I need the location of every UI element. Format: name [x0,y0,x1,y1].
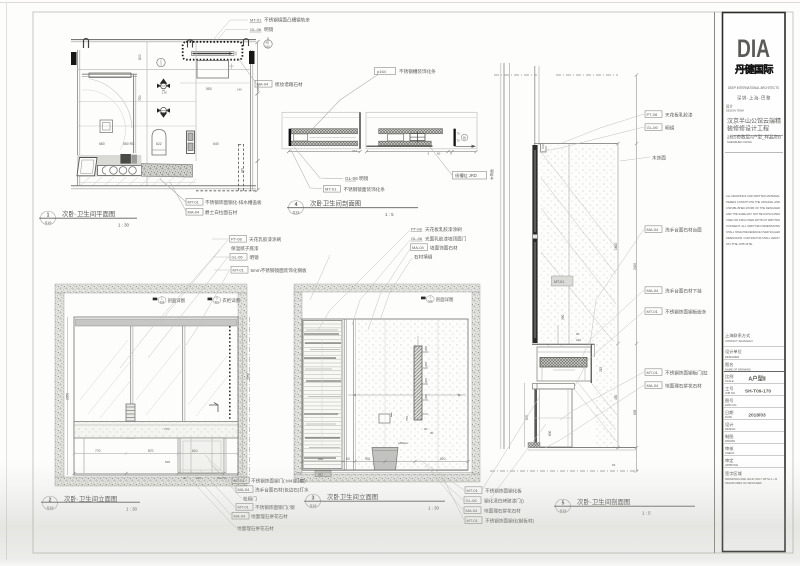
svg-text:DATE: DATE [725,415,732,419]
svg-text:汉京半山公馆云端精: 汉京半山公馆云端精 [727,117,781,125]
svg-text:PT-08: PT-08 [411,227,422,232]
svg-text:USED OR DISCLOSED WITHOUT WRIT: USED OR DISCLOSED WITHOUT WRITTEN [726,218,780,222]
svg-text:洗手台面石材台面: 洗手台面石材台面 [665,226,702,233]
svg-text:不锈钢饰面钢板嵌条: 不锈钢饰面钢板嵌条 [665,308,707,315]
svg-text:MT-01: MT-01 [325,187,337,192]
svg-text:CONTACT SHANGHAI: CONTACT SHANGHAI [725,339,753,343]
svg-text:2400: 2400 [633,263,637,270]
svg-text:550 RC: 550 RC [123,142,135,146]
svg-text:明镜: 明镜 [665,124,675,131]
svg-text:木饰面: 木饰面 [489,169,494,180]
svg-text:DIMENSIONS. CONTRACTOR SHALL V: DIMENSIONS. CONTRACTOR SHALL VERIFY [726,236,780,240]
svg-text:140: 140 [237,88,242,92]
svg-text:750: 750 [405,416,409,421]
svg-text:地面理石拼花石材: 地面理石拼花石材 [665,382,702,389]
svg-text:90: 90 [424,427,428,431]
svg-text:GL-06: GL-06 [250,27,262,32]
svg-text:DESIGN: DESIGN [725,427,735,431]
svg-text:640: 640 [213,142,219,146]
svg-text:φ50мм: φ50мм [398,441,407,445]
svg-text:洗手台面石材下挂: 洗手台面石材下挂 [665,287,702,294]
svg-text:次卧卫生间剖面图: 次卧卫生间剖面图 [310,199,361,208]
svg-text:HEREIN CONSTITUTE THE ORIGINAL: HEREIN CONSTITUTE THE ORIGINAL AND [726,200,781,204]
svg-text:剖面详图: 剖面详图 [168,297,186,304]
svg-text:2018/03: 2018/03 [748,413,766,419]
svg-text:200: 200 [424,362,428,367]
svg-text:610: 610 [192,449,198,453]
svg-text:DWG NO.: DWG NO. [725,403,737,407]
svg-text:台: 台 [463,135,466,140]
svg-text:622: 622 [156,142,162,146]
svg-text:不锈钢镜面凸槽镜轨条: 不锈钢镜面凸槽镜轨条 [264,17,310,24]
svg-text:天花板乳胶漆涂刷: 天花板乳胶漆涂刷 [425,226,462,233]
svg-text:215: 215 [599,366,603,372]
svg-text:4: 4 [295,202,298,208]
svg-text:MA-04: MA-04 [257,82,270,87]
svg-text:ALL DRAWINGS AND WRITTEN MATER: ALL DRAWINGS AND WRITTEN MATERIAL [726,194,780,198]
svg-text:CONSENT. ALL WRITTEN DIMENSION: CONSENT. ALL WRITTEN DIMENSIONS [726,224,780,228]
svg-text:光面乳胶漆墙顶面门: 光面乳胶漆墙顶面门 [425,236,467,243]
svg-text:审核: 审核 [725,445,734,452]
svg-text:GL-06: GL-06 [411,236,423,241]
svg-text:DESIGNER: DESIGNER [725,355,739,359]
svg-text:剖面详图: 剖面详图 [436,296,454,303]
svg-text:200: 200 [424,394,428,399]
svg-text:MT-01: MT-01 [250,18,262,23]
svg-text:天花乳胶漆涂刷: 天花乳胶漆涂刷 [249,236,282,243]
svg-text:75: 75 [457,139,461,143]
svg-text:870: 870 [148,449,154,453]
svg-text:p164: p164 [377,69,387,74]
svg-text:553: 553 [206,87,212,91]
svg-text:200: 200 [424,378,428,383]
svg-text:1 : 5: 1 : 5 [385,212,394,217]
svg-text:MA-04: MA-04 [188,210,201,215]
svg-text:JOB NO.: JOB NO. [725,391,736,395]
svg-text:MA-04: MA-04 [647,288,660,293]
svg-text:MA-04: MA-04 [647,227,660,232]
svg-text:比例: 比例 [725,373,733,380]
svg-text:240: 240 [576,338,581,342]
svg-text:SH-T09-170: SH-T09-170 [745,389,771,395]
svg-text:DRAWN: DRAWN [725,439,735,443]
svg-text:明镜: 明镜 [264,26,274,33]
svg-text:MT-01: MT-01 [554,280,564,284]
svg-text:715: 715 [164,427,169,431]
svg-text:MT-01: MT-01 [647,309,659,314]
svg-text:800: 800 [138,54,142,60]
svg-text:AND THE SAME MAY NOT BE DUPLIC: AND THE SAME MAY NOT BE DUPLICATED [726,212,781,216]
svg-text:装修修设计工程: 装修修设计工程 [727,125,769,133]
svg-text:ON THE JOB SITE.: ON THE JOB SITE. [726,242,753,246]
svg-text:450: 450 [614,394,618,400]
svg-text:374: 374 [352,149,357,153]
svg-text:PT-08: PT-08 [647,112,658,117]
svg-text:60: 60 [437,152,441,156]
svg-text:明镜: 明镜 [250,254,260,261]
svg-text:DIA: DIA [737,35,770,63]
svg-text:680: 680 [99,142,105,146]
svg-text:200: 200 [424,346,428,351]
svg-text:设计: 设计 [726,104,733,109]
svg-text:GL-06: GL-06 [232,255,244,260]
svg-text:5mm不锈钢镜面装饰化钢板: 5mm不锈钢镜面装饰化钢板 [251,267,308,274]
svg-text:深圳·上海·巴黎: 深圳·上海·巴黎 [737,95,771,102]
svg-text:爵士白拉面石材: 爵士白拉面石材 [205,209,238,216]
svg-text:梳妆谱踏石材: 梳妆谱踏石材 [275,81,303,88]
svg-text:60: 60 [576,332,580,336]
svg-text:天花板乳胶漆: 天花板乳胶漆 [665,111,693,118]
svg-text:DESIGN TEAM: DESIGN TEAM [726,109,744,113]
svg-text:线槽缸 JRD: 线槽缸 JRD [455,172,477,179]
svg-text:GL-06: GL-06 [647,125,659,130]
svg-text:UNPUBLISHED WORK OF THE DESIGN: UNPUBLISHED WORK OF THE DESIGNER [726,206,781,210]
svg-text:CHECK: CHECK [725,451,735,455]
svg-text:A户型Ⅱ: A户型Ⅱ [748,375,766,383]
svg-text:S19: S19 [45,221,52,225]
svg-text:1:60: 1:60 [162,91,168,95]
svg-text:S19: S19 [265,45,270,49]
svg-text:上海联系方式: 上海联系方式 [725,332,751,339]
svg-text:750: 750 [138,95,142,101]
svg-text:石材填缝: 石材填缝 [414,254,433,261]
svg-text:770: 770 [95,449,101,453]
svg-text:628: 628 [633,409,637,415]
svg-text:NAME OF DRAWING: NAME OF DRAWING [725,368,751,372]
svg-text:600: 600 [548,430,552,436]
svg-text:SCALE: SCALE [725,379,734,383]
svg-text:DEEP INTERNATIONAL ARCHITECTS: DEEP INTERNATIONAL ARCHITECTS [728,86,779,90]
svg-text:SHALL HAVE PRECEDENCE OVER SCA: SHALL HAVE PRECEDENCE OVER SCALED [726,230,781,234]
svg-text:MT-01: MT-01 [188,200,200,205]
svg-text:不锈钢饰面钢板门(缸: 不锈钢饰面钢板门(缸 [665,369,708,376]
svg-text:S19: S19 [293,211,300,215]
svg-text:丹健国际: 丹健国际 [735,63,773,76]
svg-text:PT-08: PT-08 [231,237,242,242]
svg-text:制图: 制图 [725,433,733,440]
svg-text:不锈钢饰面钢化-排水槽盖板: 不锈钢饰面钢化-排水槽盖板 [205,199,262,206]
svg-text:1 : 30: 1 : 30 [118,223,130,228]
svg-text:2350: 2350 [247,373,251,380]
svg-text:木饰面: 木饰面 [652,155,666,162]
svg-text:MT-01: MT-01 [233,268,245,273]
svg-text:次卧·卫生间平面图: 次卧·卫生间平面图 [62,209,115,218]
svg-text:390: 390 [561,314,565,320]
svg-text:不锈钢槽装饰化条: 不锈钢槽装饰化条 [399,68,436,75]
svg-text:1600: 1600 [614,243,618,250]
svg-text:墙面饰面石材: 墙面饰面石材 [430,244,458,251]
svg-text:SHENZHEN CHINA: SHENZHEN CHINA [727,140,752,144]
svg-text:图名: 图名 [725,361,733,368]
svg-text:不锈钢镜面装饰化条: 不锈钢镜面装饰化条 [344,186,386,193]
svg-text:2350: 2350 [66,393,70,400]
svg-text:MA-04: MA-04 [647,383,660,388]
svg-text:设计单位: 设计单位 [725,348,742,355]
svg-text:保温腻子底漆: 保温腻子底漆 [231,245,259,252]
svg-text:设计: 设计 [725,421,733,428]
svg-text:MT-01: MT-01 [647,370,659,375]
svg-text:90: 90 [430,431,434,435]
svg-text:1: 1 [47,212,50,218]
svg-text:衣柜详图: 衣柜详图 [222,297,240,304]
svg-text:70: 70 [457,132,461,136]
svg-text:MA-04: MA-04 [412,245,425,250]
